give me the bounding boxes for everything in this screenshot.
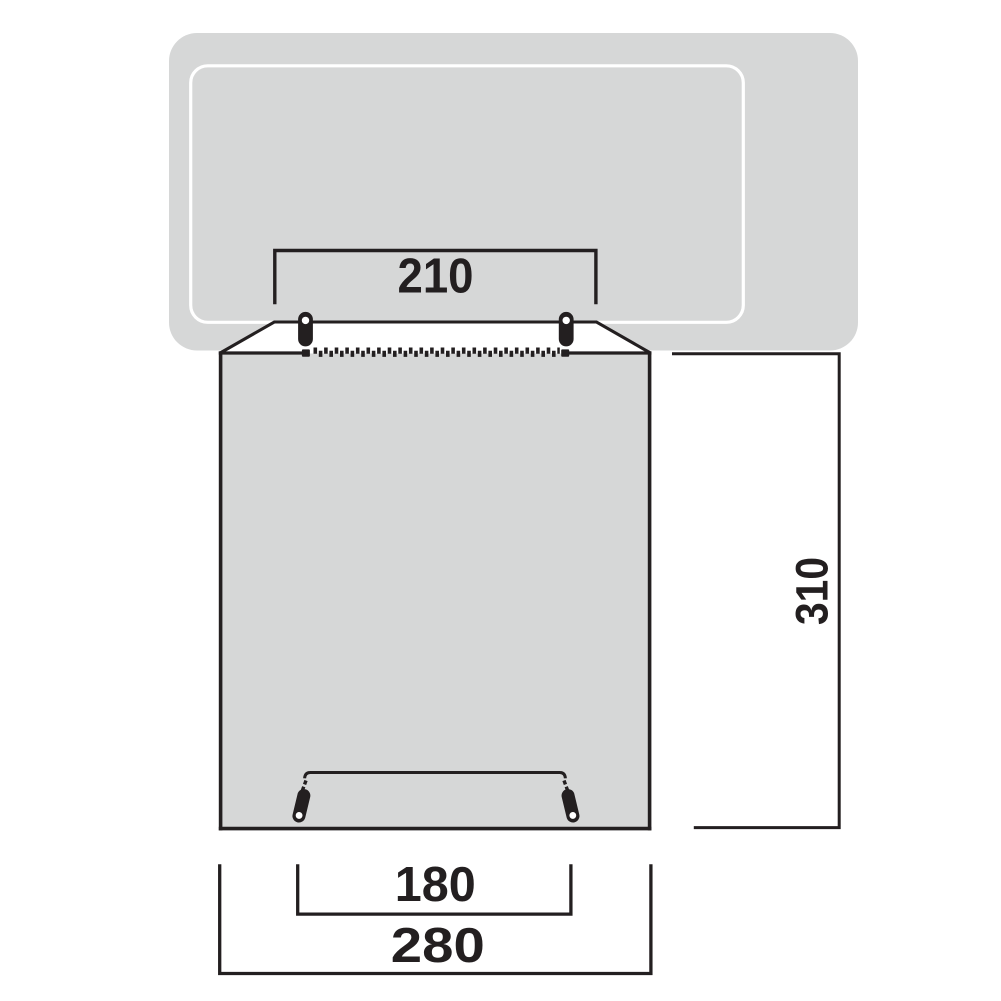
svg-text:180: 180 (395, 858, 476, 912)
svg-text:310: 310 (787, 557, 838, 625)
svg-text:280: 280 (391, 919, 485, 973)
svg-text:210: 210 (398, 250, 474, 304)
